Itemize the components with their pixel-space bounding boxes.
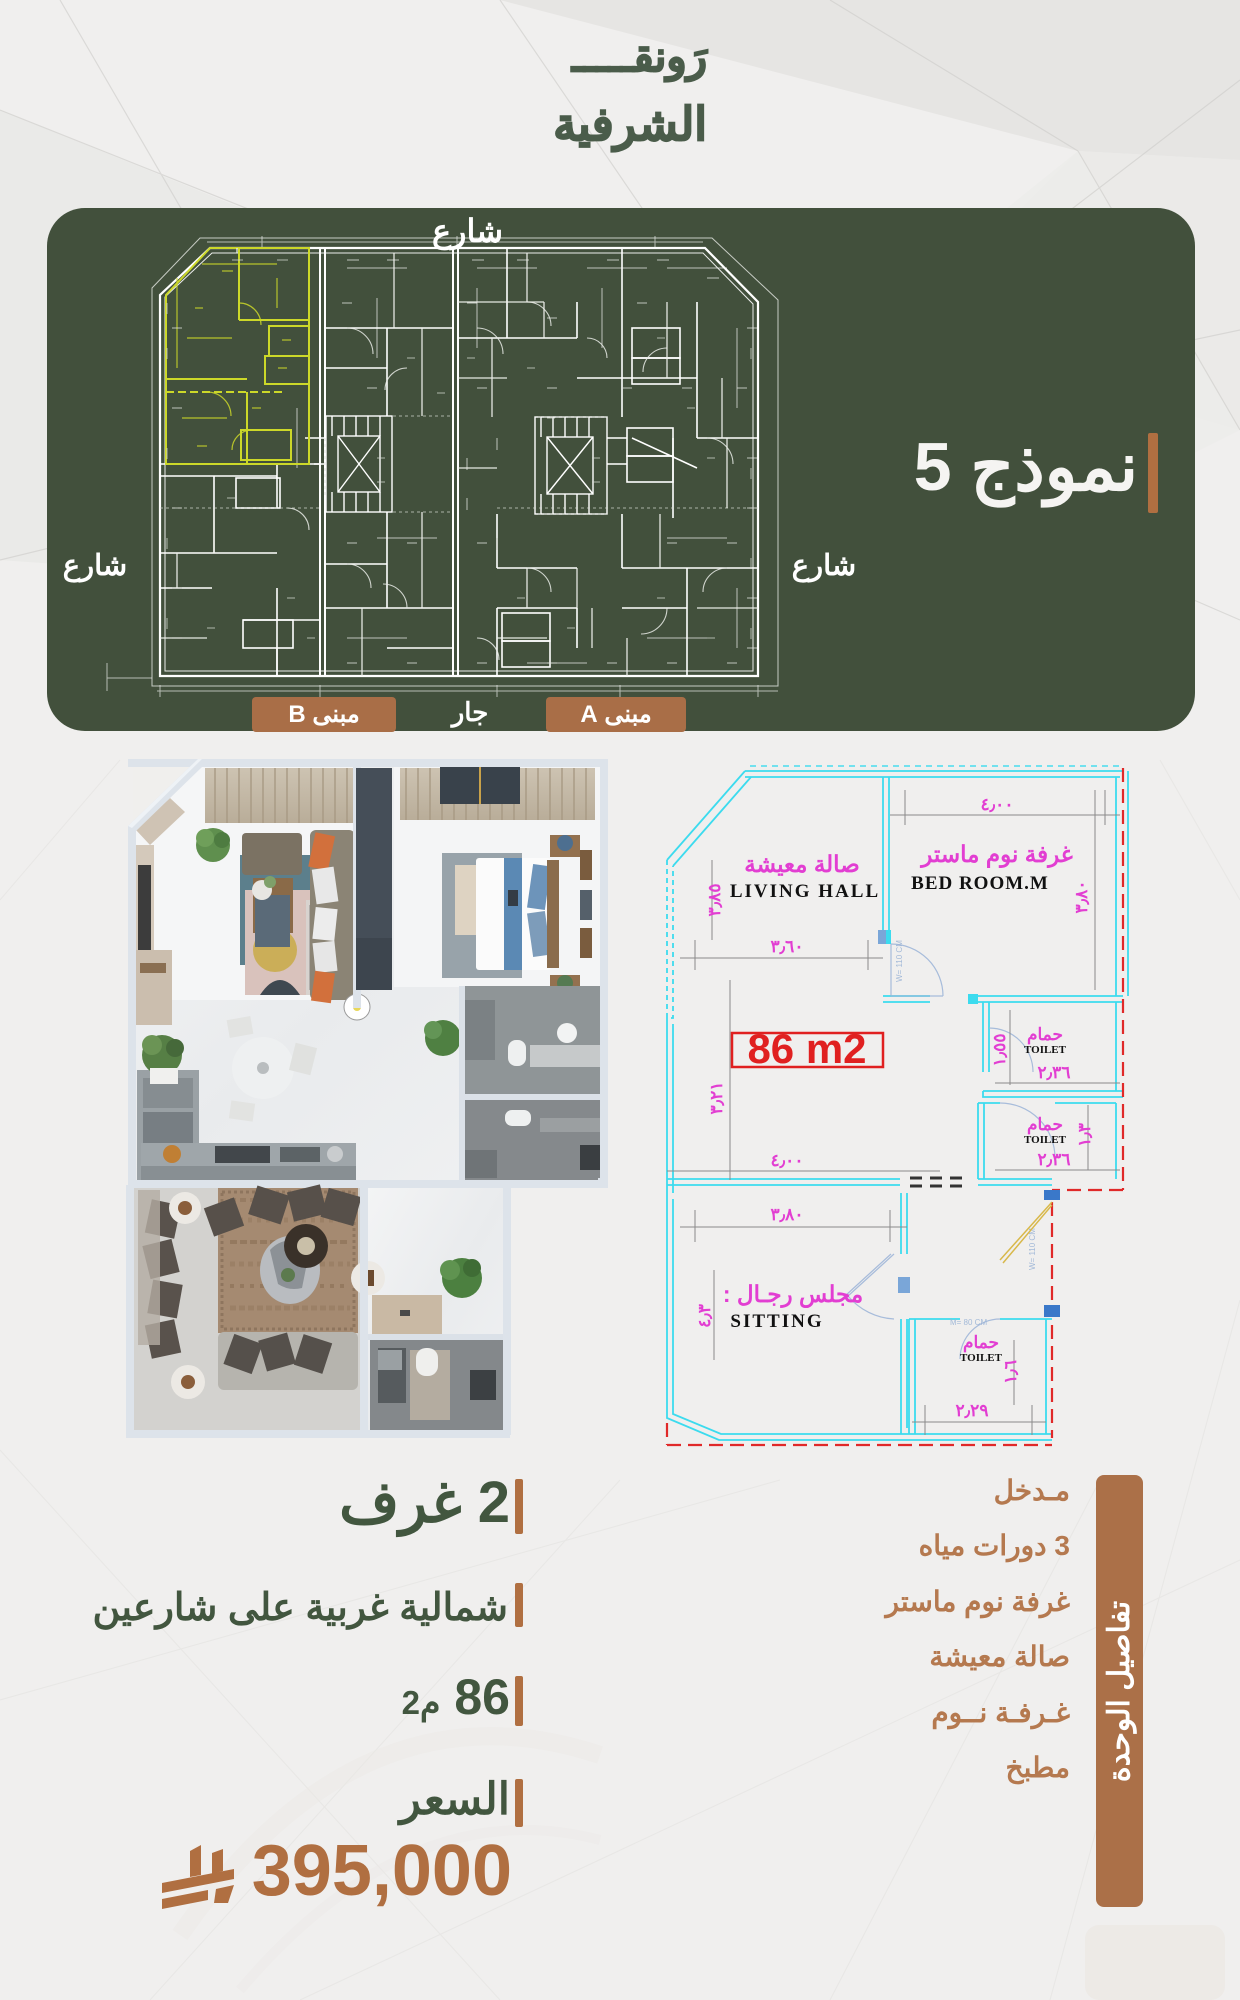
svg-text:M= 80 CM: M= 80 CM	[950, 1318, 987, 1327]
svg-text:غرفة نوم ماستر: غرفة نوم ماستر	[919, 841, 1073, 869]
svg-text:٣٫٦٠: ٣٫٦٠	[771, 937, 804, 956]
svg-text:BED ROOM.M: BED ROOM.M	[911, 873, 1049, 894]
svg-text:TOILET: TOILET	[1024, 1044, 1067, 1056]
svg-text:٢٫٣٦: ٢٫٣٦	[1038, 1150, 1071, 1169]
svg-text:٤٫٣: ٤٫٣	[695, 1304, 714, 1328]
svg-text:٤٫٠٠: ٤٫٠٠	[981, 795, 1014, 814]
svg-text:٤٫٠٠: ٤٫٠٠	[771, 1151, 804, 1170]
svg-text:٢٫٣٦: ٢٫٣٦	[1038, 1063, 1071, 1082]
svg-text:TOILET: TOILET	[960, 1352, 1003, 1364]
svg-text:٣٫٢١: ٣٫٢١	[707, 1082, 726, 1115]
svg-text:١٫٣: ١٫٣	[1075, 1123, 1094, 1147]
svg-text:٣٫٨٠: ٣٫٨٠	[1072, 881, 1091, 914]
svg-text:صالة معيشة: صالة معيشة	[744, 851, 859, 877]
svg-text:٣٫٨٠: ٣٫٨٠	[771, 1205, 804, 1224]
svg-text:W= 110 CM: W= 110 CM	[895, 940, 904, 982]
svg-text:W= 110 CM: W= 110 CM	[1028, 1228, 1037, 1270]
svg-text:TOILET: TOILET	[1024, 1134, 1067, 1146]
svg-text:مجلس رجـال :: مجلس رجـال :	[723, 1281, 863, 1309]
svg-text:٢٫٢٩: ٢٫٢٩	[956, 1401, 989, 1420]
svg-text:٣٫٨٥: ٣٫٨٥	[705, 884, 724, 917]
svg-text:حمام: حمام	[963, 1333, 999, 1353]
svg-text:LIVING HALL: LIVING HALL	[730, 881, 880, 902]
svg-text:١٫٦: ١٫٦	[1001, 1360, 1020, 1384]
svg-text:حمام: حمام	[1027, 1025, 1063, 1045]
svg-text:86 m2: 86 m2	[747, 1025, 866, 1072]
svg-text:١٫٥٥: ١٫٥٥	[990, 1034, 1009, 1067]
svg-text:SITTING: SITTING	[730, 1311, 823, 1332]
svg-text:حمام: حمام	[1027, 1115, 1063, 1135]
